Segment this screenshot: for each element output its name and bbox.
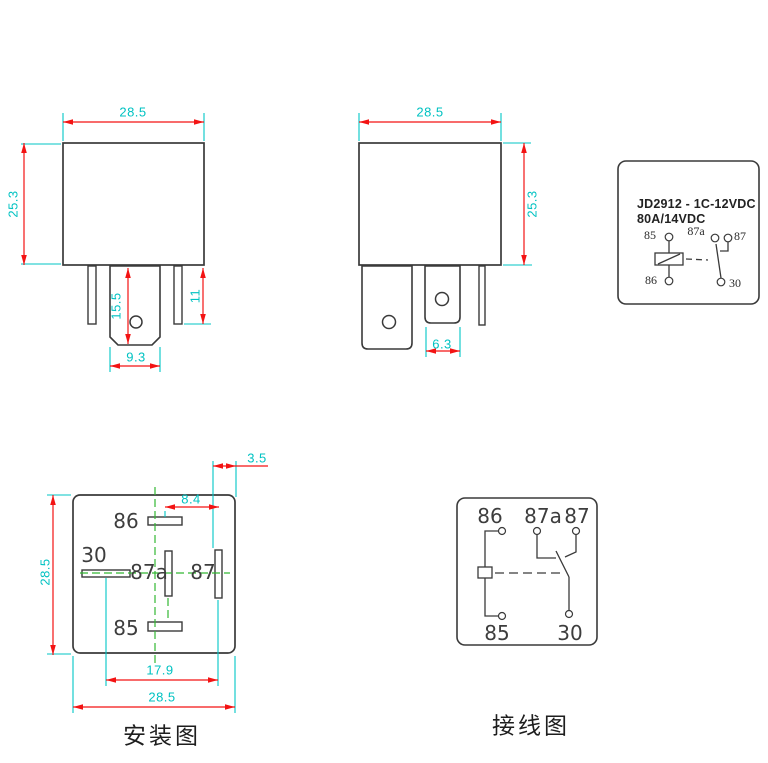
terminal-87-icon — [724, 234, 732, 242]
mounting-pin-87a-label: 87a — [130, 562, 168, 582]
front-side-pin-dim: 11 — [189, 289, 202, 304]
mounting-pin-85-label: 85 — [113, 618, 138, 638]
side-view-body — [359, 143, 501, 349]
mounting-height-dim: 28.5 — [39, 558, 52, 585]
wiring-caption: 接线图 — [492, 716, 570, 739]
slot-87-icon — [215, 550, 222, 598]
coil-symbol-icon — [478, 567, 492, 578]
slot-85-icon — [148, 622, 182, 631]
front-view-body — [63, 143, 204, 345]
mounting-edge-offset-dim: 3.5 — [247, 452, 267, 465]
wiring-pin-30-label: 30 — [557, 623, 582, 643]
front-pin-width-dim: 9.3 — [126, 351, 146, 364]
terminal-86-icon — [499, 528, 506, 535]
side-pin-width-dim: 6.3 — [432, 338, 452, 351]
side-width-dim: 28.5 — [416, 106, 443, 119]
terminal-85-icon — [665, 233, 673, 241]
wiring-pin-87a-label: 87a — [524, 506, 562, 526]
terminal-hole-icon — [383, 316, 396, 329]
mounting-hole-icon — [130, 316, 142, 328]
schematic-pin-86-label: 86 — [645, 274, 657, 286]
terminal-87a-icon — [534, 528, 541, 535]
relay-datasheet-drawing: 28.5 25.3 15.5 11 9.3 28.5 25.3 6.3 JD29… — [0, 0, 768, 763]
terminal-hole-icon — [436, 293, 449, 306]
schematic-pin-87a-label: 87a — [687, 225, 704, 237]
wiring-pin-87-label: 87 — [564, 506, 589, 526]
wiring-pin-85-label: 85 — [484, 623, 509, 643]
front-width-dim: 28.5 — [119, 106, 146, 119]
mounting-pin-offset-dim: 8.4 — [181, 493, 201, 506]
front-height-dim: 25.3 — [7, 190, 20, 217]
mounting-pin-span-dim: 17.9 — [146, 664, 173, 677]
side-height-dim: 25.3 — [526, 190, 539, 217]
terminal-30-icon — [566, 611, 573, 618]
terminal-86-icon — [665, 277, 673, 285]
terminal-85-icon — [499, 613, 506, 620]
front-pin-length-dim: 15.5 — [110, 292, 123, 319]
schematic-pin-85-label: 85 — [644, 229, 656, 241]
mounting-pin-86-label: 86 — [113, 511, 138, 531]
mounting-caption: 安装图 — [123, 726, 201, 749]
linework-layer — [0, 0, 768, 763]
slot-86-icon — [148, 517, 182, 525]
schematic-pin-30-label: 30 — [729, 277, 741, 289]
schematic-pin-87-label: 87 — [734, 230, 746, 242]
wiring-pin-86-label: 86 — [477, 506, 502, 526]
terminal-87-icon — [573, 528, 580, 535]
mounting-pin-30-label: 30 — [81, 545, 106, 565]
part-number-title: JD2912 - 1C-12VDC — [637, 198, 756, 211]
terminal-87a-icon — [711, 234, 719, 242]
mounting-width-dim: 28.5 — [148, 691, 175, 704]
terminal-30-icon — [717, 278, 725, 286]
mounting-pin-87-label: 87 — [190, 562, 215, 582]
